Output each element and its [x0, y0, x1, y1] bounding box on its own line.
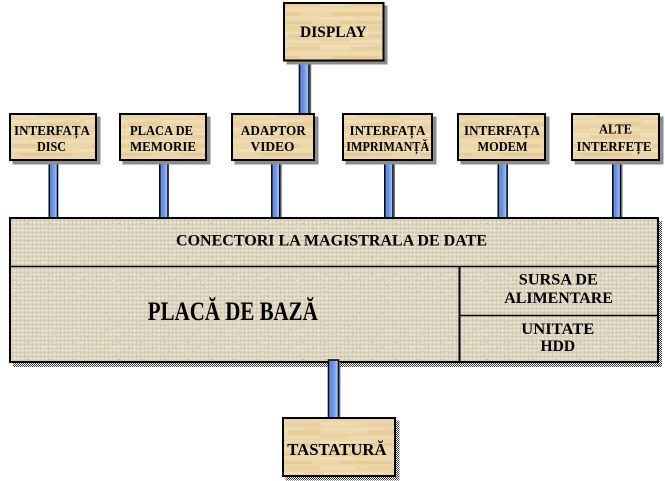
svg-text:TASTATURĂ: TASTATURĂ: [287, 440, 386, 459]
svg-text:ADAPTOR: ADAPTOR: [241, 124, 307, 139]
svg-text:INTERFAȚA: INTERFAȚA: [350, 124, 427, 139]
svg-text:SURSA DE: SURSA DE: [519, 271, 598, 288]
svg-text:ALTE: ALTE: [599, 123, 632, 138]
svg-text:MEMORIE: MEMORIE: [130, 140, 196, 155]
svg-text:ALIMENTARE: ALIMENTARE: [504, 290, 613, 307]
svg-text:INTERFAȚA: INTERFAȚA: [14, 124, 91, 139]
svg-text:UNITATE: UNITATE: [521, 321, 594, 338]
svg-text:PLACĂ DE BAZĂ: PLACĂ DE BAZĂ: [148, 296, 319, 326]
svg-text:INTERFEȚE: INTERFEȚE: [577, 140, 652, 155]
svg-text:HDD: HDD: [541, 338, 576, 355]
svg-text:IMPRIMANȚĂ: IMPRIMANȚĂ: [346, 138, 430, 155]
svg-text:DISC: DISC: [37, 140, 66, 155]
svg-text:VIDEO: VIDEO: [251, 140, 295, 155]
svg-text:INTERFAȚA: INTERFAȚA: [464, 124, 541, 139]
svg-text:MODEM: MODEM: [478, 140, 528, 155]
svg-text:CONECTORI LA MAGISTRALA DE DAT: CONECTORI LA MAGISTRALA DE DATE: [176, 232, 487, 249]
svg-text:PLACA DE: PLACA DE: [130, 124, 193, 139]
svg-text:DISPLAY: DISPLAY: [300, 24, 367, 41]
